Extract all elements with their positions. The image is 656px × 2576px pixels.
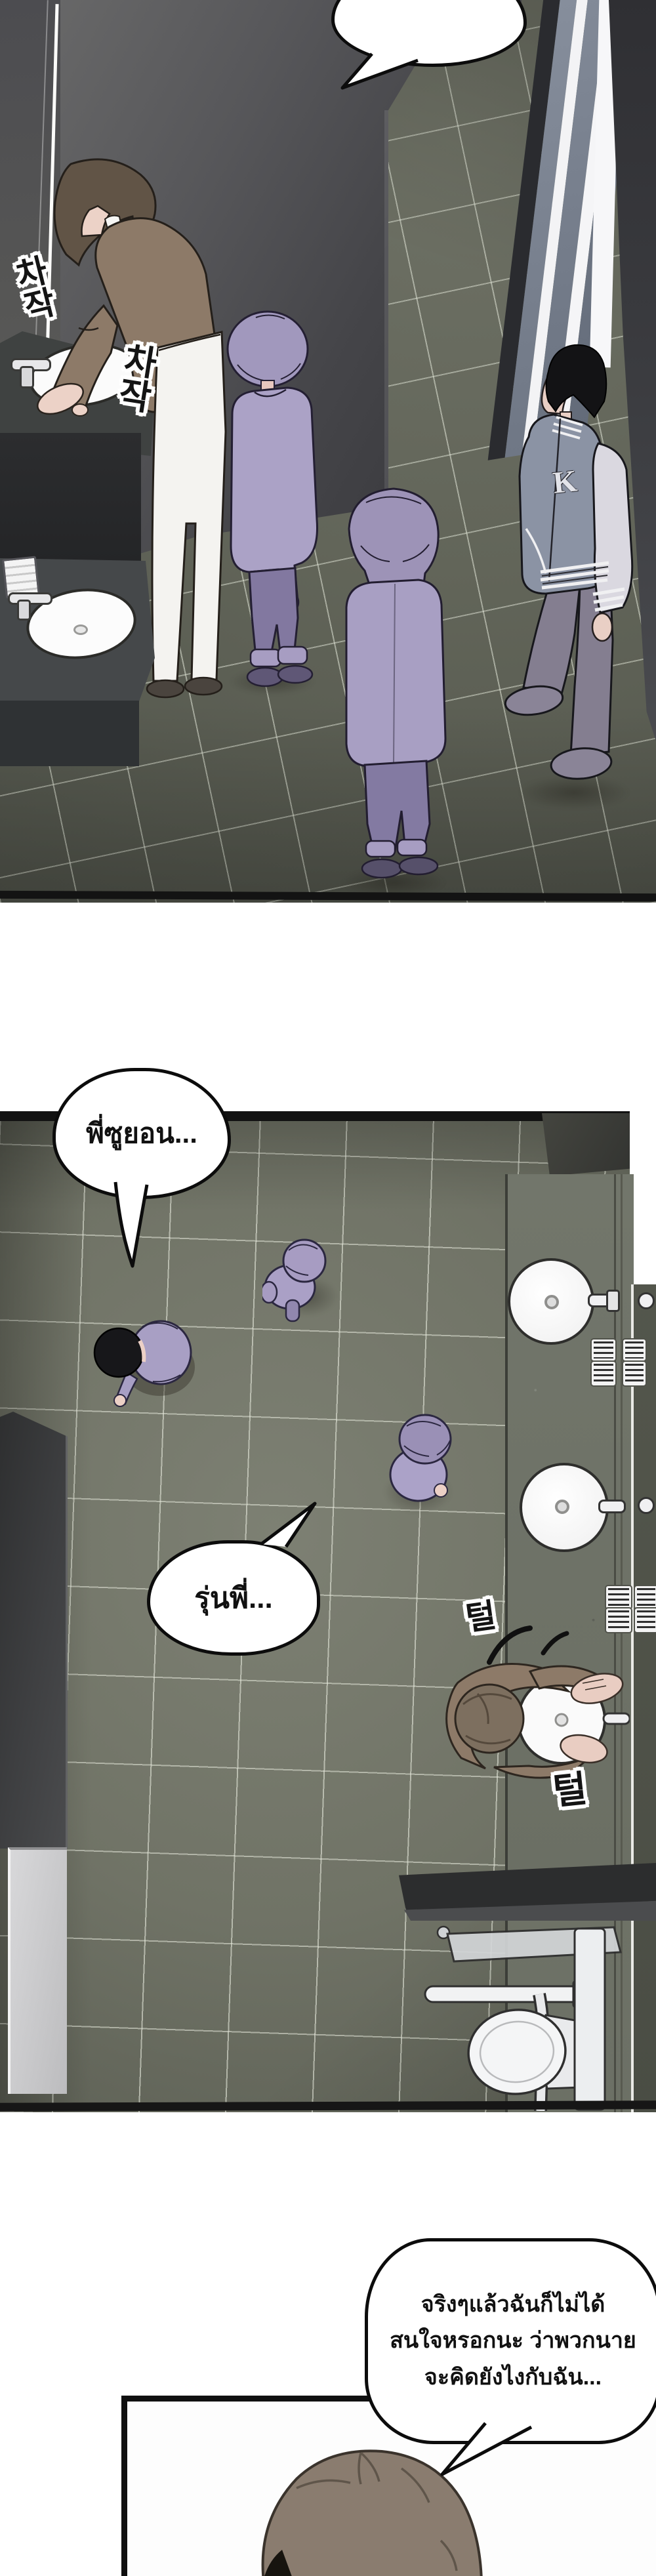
webtoon-page: K 차작 차작: [0, 0, 656, 2576]
sink-drain-2: [555, 1500, 569, 1514]
sfx-washing-lower: 차작: [113, 340, 156, 415]
speech-bubble-senior: รุ่นพี่...: [147, 1540, 320, 1656]
monologue-line-2: สนใจหรอกนะ ว่าพวกนาย: [390, 2323, 636, 2359]
toilet-pipe-column: [575, 1929, 605, 2110]
figure-student-purple-1: [218, 310, 323, 703]
figure-student-purple-2: [327, 483, 461, 887]
stall-door-left: [8, 1847, 67, 2094]
accessible-toilet-overhead: [417, 1923, 636, 2111]
panel-2-bathroom-overhead: 털 털 L THEBLANK.NET 7: [0, 1111, 656, 2112]
grab-bar: [425, 1986, 580, 2002]
white-gap: [630, 1111, 656, 1286]
figure-letterman-senior: [483, 332, 656, 811]
sfx-set-down-upper: 털: [464, 1600, 498, 1635]
figure-overhead-washer: [432, 1620, 630, 1784]
speech-bubble-monologue-tail: [434, 2421, 539, 2477]
soap-grate: [606, 1586, 631, 1608]
sink-drain-1: [544, 1295, 559, 1309]
speech-bubble-senior-tail: [257, 1501, 319, 1548]
dark-wall-block: [542, 1113, 631, 1176]
speech-bubble-sooyeon-tail: [110, 1181, 156, 1269]
counter-front-face: [0, 701, 139, 766]
monologue-line-3: จะคิดยังไงกับฉัน...: [424, 2360, 602, 2396]
sfx-set-down-lower: 털: [551, 1770, 588, 1809]
figure-overhead-student-3: [388, 1412, 457, 1507]
faucet-base-lower: [17, 600, 31, 621]
soap-grate: [592, 1362, 615, 1385]
soap-grate: [592, 1339, 615, 1360]
panel-1-bathroom-perspective: K 차작 차작: [0, 0, 656, 903]
soap-grate: [635, 1586, 656, 1608]
figure-overhead-student-1: [262, 1232, 331, 1324]
soap-grate: [623, 1362, 646, 1385]
stall-partition-left: [0, 1412, 68, 1849]
speech-bubble-sooyeon: พี่ซูยอน...: [52, 1068, 231, 1199]
speech-bubble-monologue: จริงๆแล้วฉันก็ไม่ได้ สนใจหรอกนะ ว่าพวกนา…: [365, 2238, 656, 2444]
faucet-cap-1: [606, 1290, 620, 1312]
under-counter-cabinet: [0, 433, 141, 561]
soap-grate: [623, 1339, 646, 1360]
faucet-overhead-2: [598, 1500, 626, 1513]
soap-grate: [635, 1608, 656, 1632]
jacket-letter-k: K: [551, 463, 579, 501]
faucet-knob-reflection-1: [638, 1292, 655, 1309]
wall-corner-highlight: [384, 110, 388, 506]
sink-drain: [73, 624, 88, 635]
faucet-knob-reflection-2: [638, 1497, 655, 1514]
figure-overhead-student-2: [82, 1312, 197, 1414]
speech-bubble-top-tail: [336, 52, 428, 91]
monologue-line-1: จริงๆแล้วฉันก็ไม่ได้: [421, 2287, 605, 2323]
